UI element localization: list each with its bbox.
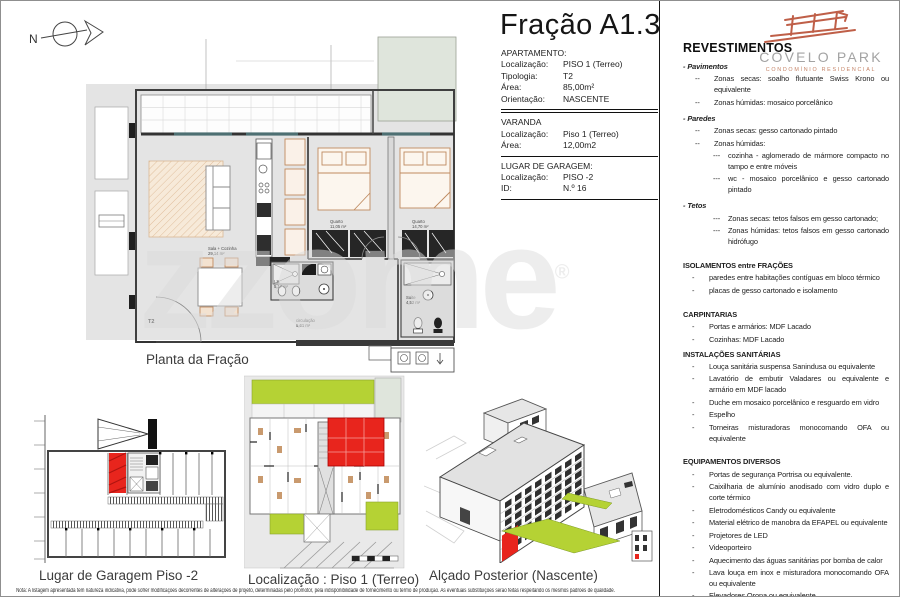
spec-item: -- Zonas secas: soalho flutuante Swiss K… (683, 74, 890, 96)
spec-item: - placas de gesso cartonado e isolamento (683, 286, 890, 297)
unit-info-block: APARTAMENTO: Localização: PISO 1 (Terreo… (501, 48, 658, 204)
info-label: Localização: (501, 129, 563, 140)
spec-item: - Duche em mosaico porcelânico e resguar… (683, 398, 890, 409)
spec-text: wc - mosaico porcelânico e gesso cartona… (728, 174, 890, 196)
spec-item: - Tetos (683, 201, 890, 212)
watermark-registered-mark: ® (555, 261, 570, 283)
fraction-datasheet: N (0, 0, 900, 597)
spec-item: - Torneiras misturadoras monocomando OFA… (683, 423, 890, 445)
spec-text: Torneiras misturadoras monocomando OFA o… (709, 423, 890, 445)
elevation-caption: Alçado Posterior (Nascente) (429, 568, 598, 583)
spec-text: Duche em mosaico porcelânico e resguardo… (709, 398, 890, 409)
spec-bullet: - (692, 518, 709, 529)
info-row: Área: 12,00m2 (501, 140, 658, 151)
info-value: NASCENTE (563, 94, 658, 105)
spec-bullet: - (692, 410, 709, 421)
spec-text: ISOLAMENTOS entre FRAÇÕES (683, 261, 890, 272)
spec-text: Elevadores Orona ou equivalente (709, 591, 890, 597)
separator (501, 156, 658, 157)
ramp (98, 419, 157, 449)
separator (501, 109, 658, 114)
spec-item: --- wc - mosaico porcelânico e gesso car… (683, 174, 890, 196)
spec-text: Zonas secas: tetos falsos em gesso carto… (728, 214, 890, 225)
spec-bullet: --- (713, 151, 728, 173)
spec-text: Zonas húmidas: tetos falsos em gesso car… (728, 226, 890, 248)
green-area-bottom-right (366, 502, 398, 530)
spec-text: INSTALAÇÕES SANITÁRIAS (683, 350, 890, 361)
spec-text: placas de gesso cartonado e isolamento (709, 286, 890, 297)
location-caption: Localização : Piso 1 (Terreo) (248, 572, 419, 587)
spec-bullet: -- (695, 74, 714, 96)
spec-item: --- cozinha - aglomerado de mármore comp… (683, 151, 890, 173)
info-value: 85,00m² (563, 82, 658, 93)
bed (400, 148, 450, 208)
info-row: Localização: Piso 1 (Terreo) (501, 129, 658, 140)
brand-tagline: CONDOMÍNIO RESIDENCIAL (755, 67, 887, 73)
spec-item: --- Zonas húmidas: tetos falsos em gesso… (683, 226, 890, 248)
info-label: Área: (501, 82, 563, 93)
separator (501, 199, 658, 200)
spec-text: Material elétrico de manobra da EFAPEL o… (709, 518, 890, 529)
planted-terrace (378, 37, 456, 121)
spec-text: EQUIPAMENTOS DIVERSOS (683, 457, 890, 468)
spec-item: - Eletrodomésticos Candy ou equivalente (683, 506, 890, 517)
highlighted-unit (328, 418, 384, 466)
spec-bullet: - (692, 335, 709, 346)
spec-text: Cozinhas: MDF Lacado (709, 335, 890, 346)
spec-text: Videoporteiro (709, 543, 890, 554)
garage-plan-drawing (34, 409, 229, 571)
garage-rows: Localização: PISO -2 ID: N.º 16 (501, 172, 658, 195)
info-row: Tipologia: T2 (501, 71, 658, 82)
spec-item: - Elevadores Orona ou equivalente (683, 591, 890, 597)
spec-bullet: - (692, 273, 709, 284)
spec-item: - Portas de segurança Portrisa ou equiva… (683, 470, 890, 481)
info-row: Área: 85,00m² (501, 82, 658, 93)
floor-plan-drawing: Sala + Cozinha 29,14 m² (86, 27, 461, 374)
spec-text: Lava louça em inox e misturadora monocom… (709, 568, 890, 590)
spec-item: CARPINTARIAS (683, 310, 890, 321)
info-label: Localização: (501, 172, 563, 183)
spec-item: - Aquecimento das águas sanitárias por b… (683, 556, 890, 567)
spec-bullet: - (692, 374, 709, 396)
info-label: Área: (501, 140, 563, 151)
info-value: PISO -2 (563, 172, 658, 183)
plan-caption: Planta da Fração (146, 352, 249, 367)
balcony-rows: Localização: Piso 1 (Terreo) Área: 12,00… (501, 129, 658, 152)
apartment-header: APARTAMENTO: (501, 48, 658, 59)
spec-item: -- Zonas secas: gesso cartonado pintado (683, 126, 890, 137)
spec-text: Portas e armários: MDF Lacado (709, 322, 890, 333)
info-value: 12,00m2 (563, 140, 658, 151)
spec-bullet: - (692, 470, 709, 481)
spec-text: paredes entre habitações contíguas em bl… (709, 273, 890, 284)
spec-bullet: - (692, 398, 709, 409)
spec-item: ISOLAMENTOS entre FRAÇÕES (683, 261, 890, 272)
building-floor-plate (250, 418, 400, 514)
spec-item: EQUIPAMENTOS DIVERSOS (683, 457, 890, 468)
north-label: N (29, 32, 38, 46)
spec-bullet: -- (695, 98, 714, 109)
spec-text: CARPINTARIAS (683, 310, 890, 321)
spec-item: -- Zonas húmidas: (683, 139, 890, 150)
spec-bullet: - (692, 506, 709, 517)
spec-bullet: - (692, 482, 709, 504)
brand-logo-icon (755, 4, 865, 48)
garage-caption: Lugar de Garagem Piso -2 (39, 568, 198, 583)
dining-table (198, 268, 242, 306)
spec-text: Eletrodomésticos Candy ou equivalente (709, 506, 890, 517)
spec-item: -- Zonas húmidas: mosaico porcelânico (683, 98, 890, 109)
spec-bullet: - (692, 362, 709, 373)
garage-header: LUGAR DE GARAGEM: (501, 161, 658, 172)
assigned-parking-space (109, 453, 126, 493)
spec-text: Projetores de LED (709, 531, 890, 542)
spec-text: Zonas húmidas: (714, 139, 890, 150)
info-row: Orientação: NASCENTE (501, 94, 658, 105)
scale-bar (352, 556, 398, 561)
info-value: T2 (563, 71, 658, 82)
bed (318, 148, 370, 210)
info-value: PISO 1 (Terreo) (563, 59, 658, 70)
info-value: Piso 1 (Terreo) (563, 129, 658, 140)
room-area: 14,70 m² (412, 224, 429, 229)
spec-bullet: --- (713, 174, 728, 196)
room-area: 4,52 m² (406, 300, 421, 305)
info-row: ID: N.º 16 (501, 183, 658, 194)
far-building-fragment (632, 531, 652, 561)
spec-item: - Material elétrico de manobra da EFAPEL… (683, 518, 890, 529)
spec-bullet: - (692, 568, 709, 590)
room-area: 5,61 m² (296, 323, 311, 328)
panel-divider (659, 1, 660, 596)
spec-item: - Projetores de LED (683, 531, 890, 542)
entrance-stub (304, 514, 330, 542)
disclaimer-note: Nota: A listagem apresentada tem naturez… (16, 588, 656, 594)
room-area: 29,14 m² (208, 251, 225, 256)
room-area: 5,17 m² (274, 284, 289, 289)
brand-logo: COVELO PARK CONDOMÍNIO RESIDENCIAL (755, 4, 887, 73)
spec-item: - Portas e armários: MDF Lacado (683, 322, 890, 333)
balcony-header: VARANDA (501, 117, 658, 128)
spec-text: Zonas húmidas: mosaico porcelânico (714, 98, 890, 109)
entry-label: T2 (148, 319, 154, 325)
spec-item: - Louça sanitária suspensa Sanindusa ou … (683, 362, 890, 373)
spec-item: INSTALAÇÕES SANITÁRIAS (683, 350, 890, 361)
finishes-panel: COVELO PARK CONDOMÍNIO RESIDENCIAL REVES… (661, 1, 899, 596)
bedroom-2: Quarto 14,70 m² (394, 148, 454, 259)
spec-item: - Lavatório de embutir Valadares ou equi… (683, 374, 890, 396)
grid-ticks (34, 421, 45, 559)
spec-text: Portas de segurança Portrisa ou equivale… (709, 470, 890, 481)
spec-bullet: - (692, 423, 709, 445)
spec-bullet: --- (713, 214, 728, 225)
spec-item: - Lava louça em inox e misturadora monoc… (683, 568, 890, 590)
spec-bullet: - (692, 531, 709, 542)
spec-text: Lavatório de embutir Valadares ou equiva… (709, 374, 890, 396)
tech-room (391, 348, 454, 372)
spec-bullet: - (692, 322, 709, 333)
finishes-entries: - Pavimentos -- Zonas secas: soalho flut… (683, 62, 890, 597)
bathroom-is: I.S. 5,17 m² (271, 262, 333, 300)
green-area-top (252, 380, 374, 404)
stair-core (128, 453, 160, 493)
page-title: Fração A1.3 (500, 9, 661, 42)
balcony (141, 95, 371, 133)
spec-bullet: - (692, 556, 709, 567)
spec-bullet: --- (713, 226, 728, 248)
bathroom-suite: Suite 4,52 m² (398, 259, 454, 342)
info-label: Tipologia: (501, 71, 563, 82)
spec-text: Zonas secas: soalho flutuante Swiss Kron… (714, 74, 890, 96)
info-row: Localização: PISO 1 (Terreo) (501, 59, 658, 70)
spec-bullet: - (692, 286, 709, 297)
spec-text: Aquecimento das águas sanitárias por bom… (709, 556, 890, 567)
spec-bullet: - (692, 543, 709, 554)
spec-item: - paredes entre habitações contíguas em … (683, 273, 890, 284)
spec-bullet: -- (695, 139, 714, 150)
spec-text: Espelho (709, 410, 890, 421)
info-row: Localização: PISO -2 (501, 172, 658, 183)
spec-text: - Paredes (683, 114, 890, 125)
spec-text: Louça sanitária suspensa Sanindusa ou eq… (709, 362, 890, 373)
spec-bullet: -- (695, 126, 714, 137)
spec-item: - Espelho (683, 410, 890, 421)
brand-name: COVELO PARK (755, 49, 887, 65)
spec-text: cozinha - aglomerado de mármore compacto… (728, 151, 890, 173)
spec-item: - Paredes (683, 114, 890, 125)
spec-item: - Caixilharia de alumínio anodisado com … (683, 482, 890, 504)
info-value: N.º 16 (563, 183, 658, 194)
elevation-drawing (424, 391, 654, 563)
spec-item: --- Zonas secas: tetos falsos em gesso c… (683, 214, 890, 225)
sofa (206, 166, 230, 230)
finishes-list: REVESTIMENTOS - Pavimentos -- Zonas seca… (661, 1, 899, 597)
location-plan-drawing (244, 372, 409, 572)
room-area: 11,05 m² (330, 224, 347, 229)
info-label: Localização: (501, 59, 563, 70)
spec-bullet: - (692, 591, 709, 597)
spec-text: Caixilharia de alumínio anodisado com vi… (709, 482, 890, 504)
spec-item: - Videoporteiro (683, 543, 890, 554)
spec-item: - Cozinhas: MDF Lacado (683, 335, 890, 346)
apartment-rows: Localização: PISO 1 (Terreo) Tipologia: … (501, 59, 658, 105)
info-label: ID: (501, 183, 563, 194)
spec-text: Zonas secas: gesso cartonado pintado (714, 126, 890, 137)
spec-text: - Tetos (683, 201, 890, 212)
info-label: Orientação: (501, 94, 563, 105)
